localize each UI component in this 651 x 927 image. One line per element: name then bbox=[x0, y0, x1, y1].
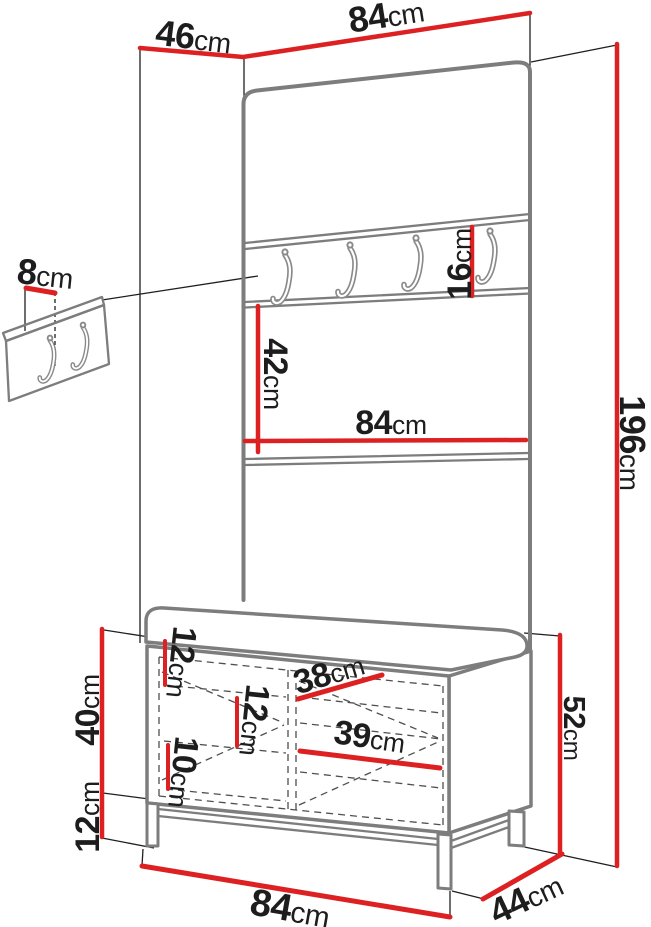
cabinet-leg bbox=[147, 803, 158, 846]
ext-bottom-diagonal bbox=[520, 846, 617, 867]
coat-hook-icon bbox=[273, 249, 290, 303]
hook-rail-top-edge-inner bbox=[245, 220, 530, 249]
ext-total-height-top bbox=[531, 45, 617, 62]
dim-label-top-width: 84cm bbox=[345, 0, 426, 41]
dim-label-bottom-width: 84cm bbox=[247, 882, 333, 927]
furniture-dimension-diagram: 46cm 84cm 8cm 16cm 42cm 84cm 196cm 40cm … bbox=[0, 0, 651, 927]
wall-panel-top-face bbox=[3, 297, 104, 341]
dim-label-top-depth: 46cm bbox=[153, 12, 233, 62]
cabinet-side-face bbox=[449, 651, 531, 833]
coat-hook-icon bbox=[478, 228, 495, 282]
ext-bottom-left bbox=[142, 849, 143, 866]
ext-bench-top bbox=[104, 630, 149, 637]
shelf-edge bbox=[245, 453, 528, 459]
ext-depth-left bbox=[452, 891, 484, 899]
dim-label-total-height: 196cm bbox=[612, 395, 651, 490]
dim-label-leg-height: 12cm bbox=[69, 781, 107, 853]
coat-hook-icon bbox=[338, 242, 355, 296]
cabinet-leg bbox=[438, 834, 451, 889]
hook-rail-top-edge bbox=[245, 214, 530, 243]
furniture-line-art bbox=[3, 62, 531, 889]
wall-hook-panel bbox=[3, 297, 109, 401]
dim-label-bench-height: 52cm bbox=[557, 695, 592, 760]
leader-wall-panel bbox=[102, 276, 258, 300]
dim-label-bench-body-height: 40cm bbox=[69, 674, 107, 746]
dim-label-wall-hook-panel: 8cm bbox=[15, 250, 75, 297]
dim-label-mid-panel-height: 42cm bbox=[256, 338, 294, 410]
coat-hook-icon bbox=[404, 235, 421, 289]
ext-bench-frame bbox=[103, 793, 149, 799]
dim-label-hook-strip-height: 16cm bbox=[441, 228, 479, 300]
coat-hook-icon bbox=[40, 336, 54, 382]
dim-label-mid-panel-width: 84cm bbox=[355, 404, 427, 442]
coat-hook-icon bbox=[73, 323, 87, 369]
middle-shelf bbox=[245, 453, 528, 465]
diagram-canvas: 46cm 84cm 8cm 16cm 42cm 84cm 196cm 40cm … bbox=[0, 0, 651, 927]
wall-panel-front-face bbox=[6, 305, 109, 401]
shelf-edge-inner bbox=[245, 459, 528, 465]
cabinet-leg bbox=[509, 811, 524, 846]
